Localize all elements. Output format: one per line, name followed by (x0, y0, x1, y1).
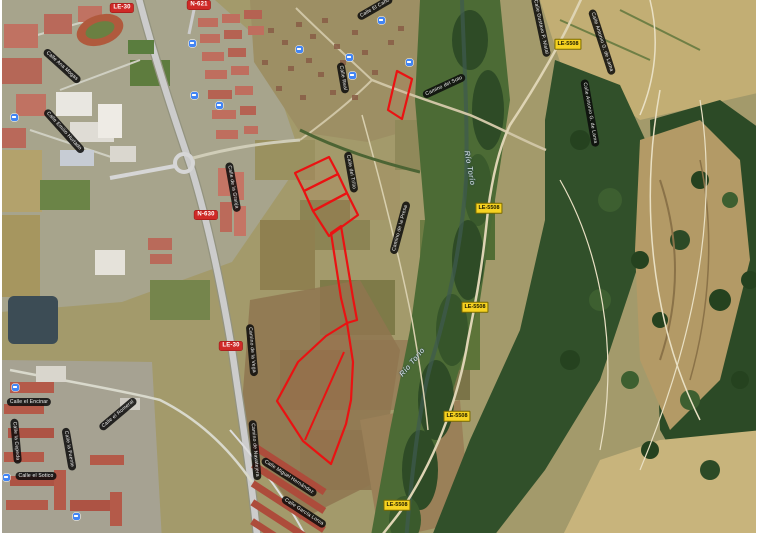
satellite-imagery (2, 0, 756, 533)
map-viewport[interactable]: LE-30N-621N-630LE-30LE-5508LE-5508LE-550… (2, 0, 756, 533)
pond (8, 296, 58, 344)
screenshot-root: LE-30N-621N-630LE-30LE-5508LE-5508LE-550… (0, 0, 762, 541)
